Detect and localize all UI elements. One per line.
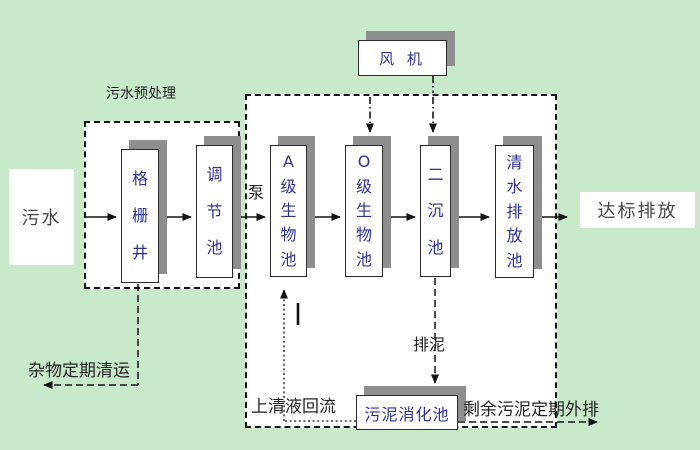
pretreatment-group-label: 污水预处理 xyxy=(106,87,176,102)
node-blower: 风 机 xyxy=(358,40,447,76)
sludge-digestion-label: 污泥消化池 xyxy=(364,401,449,425)
influent-label: 污水 xyxy=(22,204,62,230)
node-o-bio-tank: O级生物池 xyxy=(345,145,383,277)
supernatant-return-label: 上清液回流 xyxy=(251,398,336,417)
node-a-bio-tank: A级生物池 xyxy=(270,145,307,277)
grid-well-label: 格栅井 xyxy=(122,150,158,282)
sludge-discharge-label: 排泥 xyxy=(413,336,445,354)
debris-removal-label: 杂物定期清运 xyxy=(28,362,130,381)
node-discharge-outlet: 达标排放 xyxy=(580,192,695,228)
node-influent: 污水 xyxy=(9,169,74,265)
o-bio-tank-label: O级生物池 xyxy=(346,146,382,276)
clear-water-discharge-label: 清水排放池 xyxy=(496,146,533,277)
secondary-sedimentation-label: 二沉池 xyxy=(421,146,450,276)
node-regulating-tank: 调节池 xyxy=(196,145,233,278)
a-bio-tank-label: A级生物池 xyxy=(271,146,306,276)
process-flow-diagram: 格栅井 调节池 A级生物池 O级生物池 二沉池 清水排放池 风 机 污泥消化池 … xyxy=(0,0,700,450)
pump-label: 泵 xyxy=(248,184,264,202)
discharge-outlet-label: 达标排放 xyxy=(598,197,678,223)
node-sludge-digestion-tank: 污泥消化池 xyxy=(356,395,458,430)
node-clear-water-discharge-tank: 清水排放池 xyxy=(495,145,534,278)
node-secondary-sedimentation-tank: 二沉池 xyxy=(420,145,451,277)
regulating-tank-label: 调节池 xyxy=(197,146,232,277)
node-grid-well: 格栅井 xyxy=(121,149,159,283)
excess-sludge-out-label: 剩余污泥定期外排 xyxy=(463,401,599,420)
blower-label: 风 机 xyxy=(379,48,426,69)
